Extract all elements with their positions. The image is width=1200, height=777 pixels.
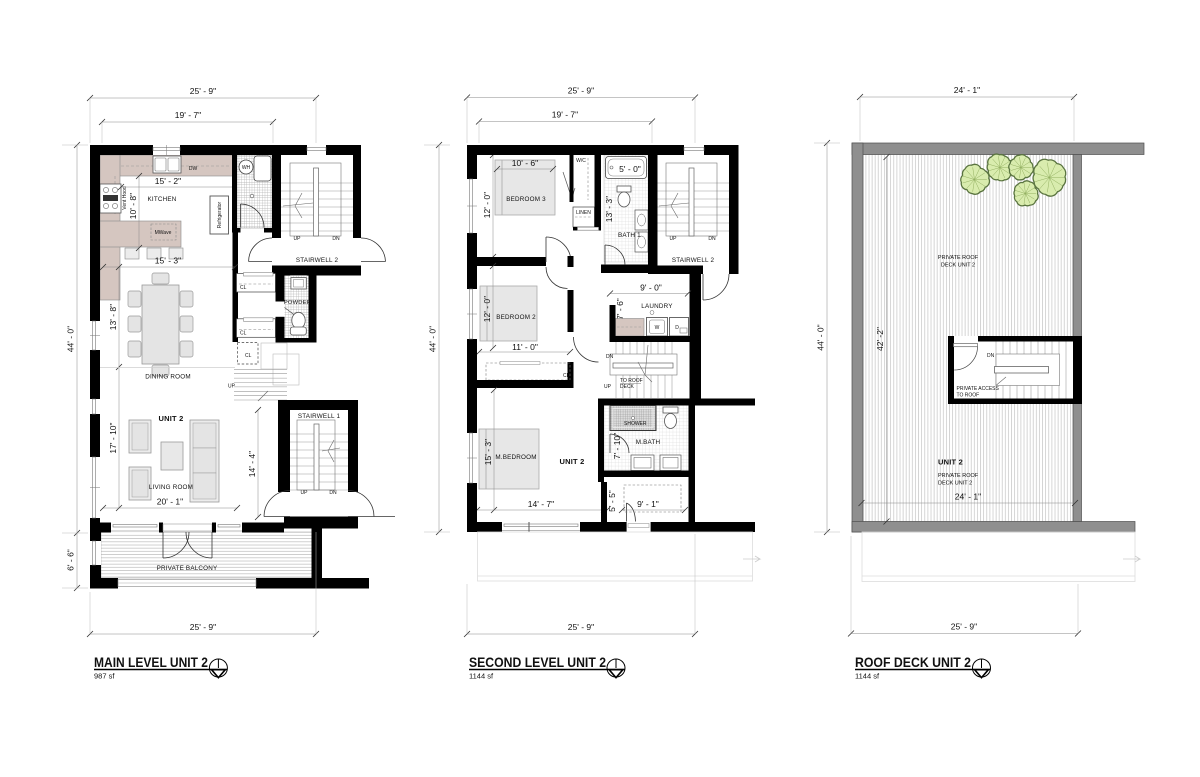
- svg-text:DN: DN: [332, 236, 340, 242]
- svg-text:PRIVATE ROOF: PRIVATE ROOF: [938, 473, 979, 479]
- svg-text:44' - 0": 44' - 0": [816, 324, 826, 350]
- svg-text:14' - 4": 14' - 4": [247, 451, 257, 477]
- svg-text:STAIRWELL 2: STAIRWELL 2: [296, 257, 339, 264]
- svg-text:CL: CL: [240, 331, 247, 337]
- svg-text:24' - 1": 24' - 1": [955, 492, 981, 502]
- svg-text:UP: UP: [604, 384, 612, 390]
- svg-text:14' - 7": 14' - 7": [528, 499, 554, 509]
- svg-text:25' - 9": 25' - 9": [951, 622, 977, 632]
- svg-text:UNIT 2: UNIT 2: [938, 458, 963, 467]
- svg-text:BEDROOM 3: BEDROOM 3: [506, 196, 546, 203]
- svg-text:5' - 5": 5' - 5": [607, 490, 617, 512]
- svg-text:25' - 9": 25' - 9": [568, 622, 594, 632]
- svg-text:24' - 1": 24' - 1": [954, 85, 980, 95]
- svg-text:UP: UP: [294, 236, 302, 242]
- svg-text:Refrigerator: Refrigerator: [217, 201, 223, 228]
- svg-text:12' - 0": 12' - 0": [482, 192, 492, 218]
- svg-text:STAIRWELL 1: STAIRWELL 1: [298, 413, 341, 420]
- svg-text:1144 sf: 1144 sf: [855, 672, 880, 681]
- svg-text:DW: DW: [189, 166, 198, 172]
- svg-text:LINEN: LINEN: [576, 210, 591, 216]
- svg-text:PRIVATE ACCESS: PRIVATE ACCESS: [957, 386, 1000, 392]
- svg-text:PRIVATE BALCONY: PRIVATE BALCONY: [157, 565, 218, 572]
- svg-text:5' - 0": 5' - 0": [619, 164, 641, 174]
- svg-text:10' - 8": 10' - 8": [128, 193, 138, 219]
- svg-text:15' - 3": 15' - 3": [483, 439, 493, 465]
- svg-text:DINING ROOM: DINING ROOM: [145, 374, 191, 381]
- svg-text:MAIN LEVEL UNIT 2: MAIN LEVEL UNIT 2: [94, 654, 208, 670]
- svg-text:SECOND LEVEL UNIT 2: SECOND LEVEL UNIT 2: [469, 654, 606, 670]
- svg-text:19' - 7": 19' - 7": [175, 110, 201, 120]
- svg-text:SHOWER: SHOWER: [624, 421, 647, 427]
- svg-text:17' - 10": 17' - 10": [108, 422, 118, 453]
- svg-text:13' - 3": 13' - 3": [604, 196, 614, 222]
- svg-text:15' - 2": 15' - 2": [155, 176, 181, 186]
- svg-text:DN: DN: [708, 236, 716, 242]
- svg-text:BATH 1: BATH 1: [618, 232, 641, 239]
- svg-text:9' - 1": 9' - 1": [637, 499, 659, 509]
- svg-text:44' - 0": 44' - 0": [428, 326, 438, 352]
- svg-text:DN: DN: [987, 353, 995, 359]
- svg-text:BEDROOM 2: BEDROOM 2: [496, 314, 536, 321]
- svg-text:DECK: DECK: [620, 384, 635, 390]
- svg-text:DN: DN: [606, 354, 614, 360]
- svg-text:POWDER: POWDER: [284, 300, 311, 306]
- svg-text:UP: UP: [228, 384, 236, 390]
- svg-text:12' - 0": 12' - 0": [482, 296, 492, 322]
- svg-text:LIVING ROOM: LIVING ROOM: [149, 484, 193, 491]
- svg-text:UP: UP: [301, 490, 309, 496]
- svg-text:MWave: MWave: [155, 230, 172, 236]
- svg-text:13' - 8": 13' - 8": [108, 304, 118, 330]
- svg-text:25' - 9": 25' - 9": [568, 86, 594, 96]
- svg-text:KITCHEN: KITCHEN: [147, 196, 176, 203]
- svg-text:20' - 1": 20' - 1": [157, 497, 183, 507]
- svg-text:TO ROOF: TO ROOF: [957, 393, 980, 399]
- svg-text:DN: DN: [329, 490, 337, 496]
- svg-text:25' - 9": 25' - 9": [190, 622, 216, 632]
- svg-text:987 sf: 987 sf: [94, 672, 115, 681]
- svg-text:9' - 0": 9' - 0": [640, 283, 662, 293]
- svg-text:CL: CL: [563, 373, 570, 379]
- svg-text:42' -2": 42' -2": [875, 327, 885, 351]
- svg-text:M.BATH: M.BATH: [636, 439, 661, 446]
- svg-text:UP: UP: [670, 236, 678, 242]
- svg-text:1144 sf: 1144 sf: [469, 672, 494, 681]
- svg-text:11' - 0": 11' - 0": [512, 342, 538, 352]
- svg-text:CL: CL: [240, 285, 247, 291]
- svg-text:M.BEDROOM: M.BEDROOM: [495, 454, 536, 461]
- svg-text:D: D: [675, 325, 679, 331]
- svg-text:DECK UNIT 2: DECK UNIT 2: [941, 263, 975, 269]
- svg-text:W/C: W/C: [576, 158, 586, 164]
- svg-text:7' - 6": 7' - 6": [615, 298, 625, 320]
- svg-text:ROOF DECK UNIT 2: ROOF DECK UNIT 2: [855, 654, 971, 670]
- svg-text:LAUNDRY: LAUNDRY: [641, 303, 673, 310]
- svg-text:10' - 6": 10' - 6": [512, 158, 538, 168]
- svg-text:CL: CL: [245, 353, 252, 359]
- svg-text:UNIT 2: UNIT 2: [560, 457, 585, 466]
- svg-text:PRIVATE ROOF: PRIVATE ROOF: [938, 255, 979, 261]
- svg-text:15' - 3": 15' - 3": [155, 256, 181, 266]
- svg-text:19' - 7": 19' - 7": [552, 110, 578, 120]
- svg-text:25' - 9": 25' - 9": [190, 86, 216, 96]
- svg-text:DECK UNIT 2: DECK UNIT 2: [938, 481, 972, 487]
- svg-text:STAIRWELL 2: STAIRWELL 2: [672, 257, 715, 264]
- svg-text:W: W: [655, 325, 660, 331]
- svg-text:WH: WH: [242, 165, 251, 171]
- svg-text:44' - 0": 44' - 0": [66, 326, 76, 352]
- svg-text:UNIT 2: UNIT 2: [159, 414, 184, 423]
- svg-text:6' - 6": 6' - 6": [66, 549, 76, 571]
